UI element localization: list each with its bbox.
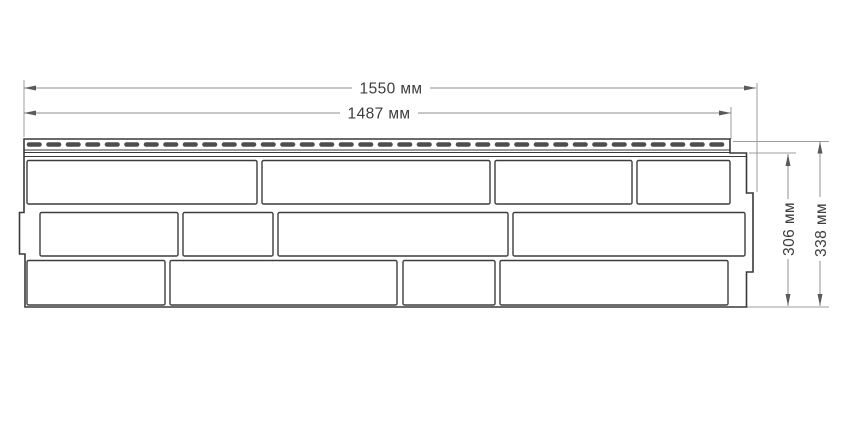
brick [403,261,495,306]
brick [513,213,745,257]
brick-row-1 [27,161,730,205]
brick-row-2 [40,213,745,257]
brick [27,261,165,306]
brick [500,261,728,306]
brick [262,161,490,205]
dimension-panel-height: 306 мм [781,154,798,306]
dimension-label-panel-height: 306 мм [781,202,798,256]
dimension-label-total-width: 1550 мм [360,81,423,98]
drawing-canvas: 1550 мм 1487 мм 306 мм 338 мм [0,0,850,425]
brick [170,261,397,306]
dimension-label-total-height: 338 мм [813,203,830,257]
brick [183,213,273,257]
dimension-total-height: 338 мм [813,142,830,307]
siding-panel [20,139,754,307]
dimension-nailstrip-width: 1487 мм [24,106,731,123]
brick [40,213,178,257]
brick [495,161,632,205]
brick-row-3 [27,261,728,306]
brick [27,161,257,205]
brick [637,161,730,205]
panel-dimension-drawing: 1550 мм 1487 мм 306 мм 338 мм [0,0,850,425]
brick [278,213,508,257]
dimension-total-width: 1550 мм [24,81,756,98]
dimension-label-nailstrip-width: 1487 мм [348,106,411,123]
